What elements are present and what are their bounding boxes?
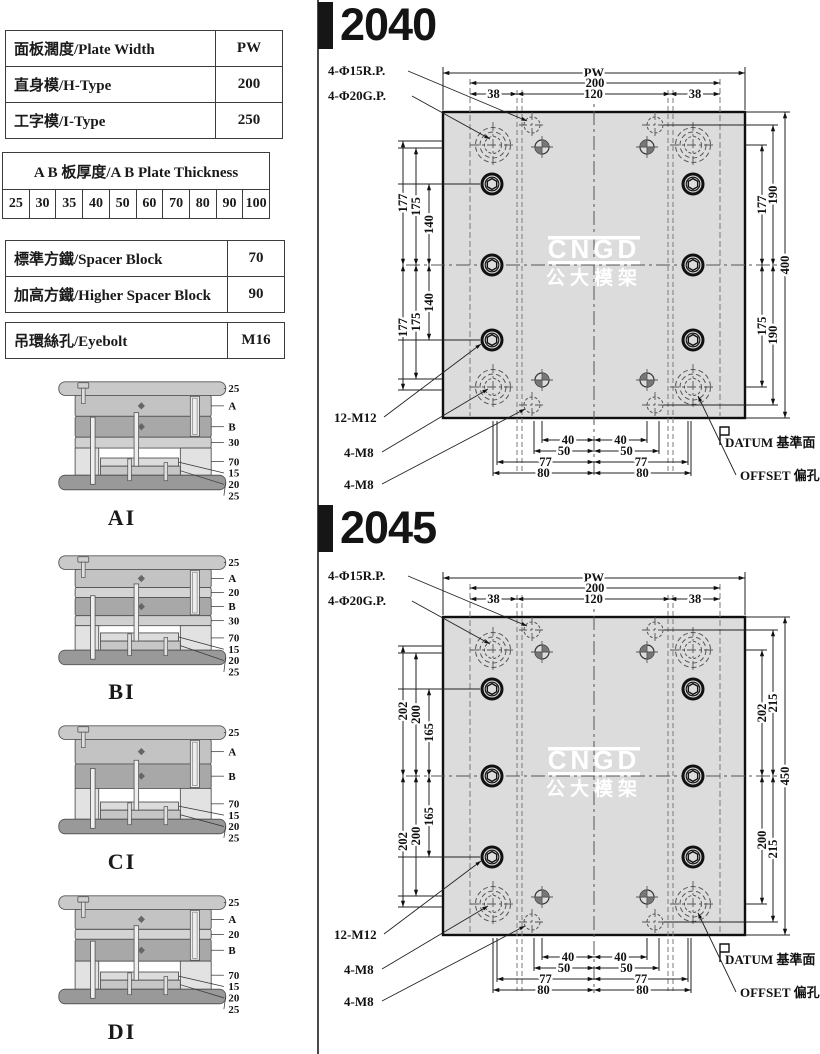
row-value: 90 bbox=[227, 277, 284, 312]
rect-shape bbox=[59, 989, 226, 1004]
dim-label: 165 bbox=[422, 807, 436, 826]
dim-label: 50 bbox=[620, 444, 633, 458]
technical-drawing-2045: CNGD公大模架PW200381203820220220020016516520… bbox=[320, 556, 820, 1034]
thickness-value: 80 bbox=[189, 190, 216, 218]
guide-pin bbox=[91, 941, 96, 998]
callout-label: 4-M8 bbox=[344, 994, 374, 1009]
mold-caption: AI bbox=[42, 505, 202, 531]
layer-label: 25 bbox=[228, 897, 239, 909]
bolt-shaft bbox=[81, 388, 85, 403]
bolt-head bbox=[78, 557, 89, 562]
plate-width-table: 面板濶度/Plate Width PW 直身模/H-Type 200 工字模/I… bbox=[5, 30, 283, 139]
bolt-head bbox=[78, 727, 89, 732]
rect-shape bbox=[180, 448, 211, 475]
guide-pin bbox=[91, 596, 96, 660]
hex-socket-screw bbox=[482, 255, 502, 275]
layer-label: 30 bbox=[228, 615, 239, 627]
dim-label: 165 bbox=[422, 723, 436, 742]
hex-socket-screw bbox=[482, 330, 502, 350]
thickness-value: 25 bbox=[3, 190, 29, 218]
thickness-value: 90 bbox=[216, 190, 243, 218]
guide-bush bbox=[190, 740, 199, 787]
bolt-shaft bbox=[164, 977, 168, 995]
callout-label: 12-M12 bbox=[334, 410, 377, 425]
ejector-pin bbox=[134, 926, 139, 980]
datum-label: DATUM 基準面 bbox=[725, 952, 815, 967]
callout-label: 12-M12 bbox=[334, 927, 377, 942]
layer-label: 25 bbox=[228, 832, 239, 844]
hex-socket-screw bbox=[482, 174, 502, 194]
thickness-value: 60 bbox=[136, 190, 163, 218]
layer-label: 70 bbox=[228, 970, 239, 982]
thickness-header: A B 板厚度/A B Plate Thickness bbox=[3, 153, 269, 190]
dim-label: 400 bbox=[778, 256, 792, 275]
dim-label: 177 bbox=[396, 318, 410, 337]
dim-label: 202 bbox=[396, 702, 410, 721]
hex-socket-screw bbox=[683, 679, 703, 699]
table-row: 加高方鐵/Higher Spacer Block 90 bbox=[6, 276, 284, 312]
rect-shape bbox=[101, 980, 181, 989]
thickness-value: 35 bbox=[55, 190, 82, 218]
rect-shape bbox=[101, 810, 181, 819]
hex-socket-screw bbox=[482, 679, 502, 699]
row-label: 面板濶度/Plate Width bbox=[6, 31, 215, 66]
rect-shape bbox=[101, 641, 181, 650]
dim-label: 140 bbox=[422, 293, 436, 312]
table-row: 直身模/H-Type 200 bbox=[6, 66, 282, 102]
mold-section-CI: 25AB70152025 bbox=[42, 724, 267, 851]
technical-drawing-2040: CNGD公大模架PW200381203817717717517514014017… bbox=[320, 52, 820, 504]
callout-label: 4-Φ20G.P. bbox=[328, 88, 386, 103]
dim-label: 200 bbox=[409, 827, 423, 846]
bolt-shaft bbox=[128, 634, 132, 656]
mold-section-AI: 25AB3070152025 bbox=[42, 380, 267, 507]
callout-label: 4-M8 bbox=[344, 962, 374, 977]
callout-label: 4-Φ20G.P. bbox=[328, 593, 386, 608]
thickness-value: 100 bbox=[242, 190, 269, 218]
dim-label: 177 bbox=[396, 194, 410, 213]
title-bar-accent bbox=[318, 2, 333, 49]
thickness-values-row: 253035405060708090100 bbox=[3, 190, 269, 218]
rect-shape bbox=[59, 819, 226, 834]
guide-bush bbox=[190, 910, 199, 960]
watermark-chinese: 公大模架 bbox=[546, 777, 642, 800]
drawing-title: 2040 bbox=[340, 2, 436, 47]
layer-label: A bbox=[228, 914, 236, 926]
bolt-shaft bbox=[128, 803, 132, 825]
dim-label: 38 bbox=[487, 592, 500, 606]
layer-label: 15 bbox=[228, 468, 239, 480]
row-value: PW bbox=[215, 31, 282, 66]
layer-label: B bbox=[228, 421, 235, 433]
callout-label: 4-M8 bbox=[344, 477, 374, 492]
layer-label: A bbox=[228, 573, 236, 585]
mold-caption: DI bbox=[42, 1019, 202, 1045]
rect-shape bbox=[548, 772, 640, 776]
rect-shape bbox=[180, 626, 211, 650]
bolt-shaft bbox=[128, 973, 132, 995]
bolt-shaft bbox=[81, 902, 85, 917]
ejector-pin bbox=[134, 584, 139, 641]
mold-caption: CI bbox=[42, 849, 202, 875]
layer-label: 25 bbox=[228, 383, 239, 395]
table-row: 工字模/I-Type 250 bbox=[6, 102, 282, 138]
hex-socket-screw bbox=[683, 174, 703, 194]
dim-label: 450 bbox=[778, 767, 792, 786]
dim-label: 215 bbox=[766, 840, 780, 859]
row-label: 吊環絲孔/Eyebolt bbox=[6, 323, 227, 358]
layer-label: 70 bbox=[228, 633, 239, 645]
layer-label: 25 bbox=[228, 557, 239, 569]
ejector-pin bbox=[134, 760, 139, 810]
dim-label: 80 bbox=[537, 466, 550, 480]
layer-label: 15 bbox=[228, 644, 239, 656]
rect-shape bbox=[75, 437, 211, 448]
callout-label: 4-M8 bbox=[344, 445, 374, 460]
layer-label: 20 bbox=[228, 821, 239, 833]
watermark-chinese: 公大模架 bbox=[546, 266, 642, 289]
layer-label: 25 bbox=[228, 490, 239, 502]
bolt-head bbox=[78, 897, 89, 902]
hex-socket-screw bbox=[482, 847, 502, 867]
dim-label: 50 bbox=[558, 961, 571, 975]
hex-socket-screw bbox=[683, 255, 703, 275]
row-label: 加高方鐵/Higher Spacer Block bbox=[6, 277, 227, 312]
dim-label: 202 bbox=[396, 832, 410, 851]
bolt-head bbox=[78, 383, 89, 388]
dim-label: 80 bbox=[537, 983, 550, 997]
catalog-page: 面板濶度/Plate Width PW 直身模/H-Type 200 工字模/I… bbox=[0, 0, 820, 1054]
dim-label: 140 bbox=[422, 215, 436, 234]
layer-label: 25 bbox=[228, 667, 239, 679]
layer-label: 20 bbox=[228, 655, 239, 667]
dim-label: 50 bbox=[620, 961, 633, 975]
ab-plate-thickness-table: A B 板厚度/A B Plate Thickness 253035405060… bbox=[2, 152, 270, 219]
dim-label: 175 bbox=[409, 197, 423, 216]
table-row: 吊環絲孔/Eyebolt M16 bbox=[6, 323, 284, 358]
dim-label: 215 bbox=[766, 694, 780, 713]
guide-bush bbox=[190, 396, 199, 436]
dim-label: 80 bbox=[636, 983, 649, 997]
thickness-value: 40 bbox=[82, 190, 109, 218]
layer-label: B bbox=[228, 601, 235, 613]
thickness-value: 50 bbox=[109, 190, 136, 218]
mold-caption: BI bbox=[42, 679, 202, 705]
mold-section-BI: 25A20B3070152025 bbox=[42, 554, 267, 681]
spacer-block-table: 標準方鐵/Spacer Block 70 加高方鐵/Higher Spacer … bbox=[5, 240, 285, 313]
hex-socket-screw bbox=[482, 766, 502, 786]
layer-label: 20 bbox=[228, 992, 239, 1004]
callout-label: 4-Φ15R.P. bbox=[328, 568, 385, 583]
bolt-shaft bbox=[164, 637, 168, 655]
row-value: 250 bbox=[215, 103, 282, 138]
rect-shape bbox=[75, 616, 211, 626]
rect-shape bbox=[548, 261, 640, 265]
row-value: M16 bbox=[227, 323, 284, 358]
watermark-logo: CNGD公大模架 bbox=[546, 745, 642, 800]
guide-pin bbox=[91, 417, 96, 484]
rect-shape bbox=[180, 961, 211, 989]
hex-socket-screw bbox=[683, 766, 703, 786]
layer-label: B bbox=[228, 945, 235, 957]
layer-label: 15 bbox=[228, 981, 239, 993]
bolt-shaft bbox=[164, 807, 168, 825]
layer-label: 15 bbox=[228, 810, 239, 822]
datum-label: DATUM 基準面 bbox=[725, 435, 815, 450]
guide-bush bbox=[190, 570, 199, 614]
callout-label: 4-Φ15R.P. bbox=[328, 63, 385, 78]
drawing-title: 2045 bbox=[340, 505, 436, 550]
bolt-shaft bbox=[164, 463, 168, 481]
dim-label: 175 bbox=[409, 313, 423, 332]
rect-shape bbox=[180, 788, 211, 819]
layer-label: B bbox=[228, 771, 235, 783]
table-row: 標準方鐵/Spacer Block 70 bbox=[6, 241, 284, 276]
layer-label: 25 bbox=[228, 1004, 239, 1016]
mold-section-DI: 25A20B70152025 bbox=[42, 894, 267, 1021]
dim-label: 190 bbox=[766, 326, 780, 345]
dim-label: 38 bbox=[689, 87, 702, 101]
eyebolt-table: 吊環絲孔/Eyebolt M16 bbox=[5, 322, 285, 359]
layer-label: A bbox=[228, 400, 236, 412]
rect-shape bbox=[101, 466, 181, 475]
offset-label: OFFSET 偏孔 bbox=[740, 985, 820, 1000]
table-row: 面板濶度/Plate Width PW bbox=[6, 31, 282, 66]
watermark-cngd: CNGD bbox=[548, 745, 641, 775]
hex-socket-screw bbox=[683, 330, 703, 350]
thickness-value: 30 bbox=[29, 190, 56, 218]
bolt-shaft bbox=[81, 732, 85, 747]
layer-label: 70 bbox=[228, 798, 239, 810]
line-shape bbox=[382, 906, 488, 969]
dim-label: 80 bbox=[636, 466, 649, 480]
row-value: 70 bbox=[227, 241, 284, 276]
bolt-shaft bbox=[128, 459, 132, 481]
title-bar-accent bbox=[318, 505, 333, 552]
row-value: 200 bbox=[215, 67, 282, 102]
thickness-value: 70 bbox=[162, 190, 189, 218]
row-label: 直身模/H-Type bbox=[6, 67, 215, 102]
row-label: 標準方鐵/Spacer Block bbox=[6, 241, 227, 276]
layer-label: 70 bbox=[228, 456, 239, 468]
dim-label: 50 bbox=[558, 444, 571, 458]
dim-label: 200 bbox=[409, 705, 423, 724]
dim-label: 120 bbox=[584, 87, 603, 101]
watermark-cngd: CNGD bbox=[548, 234, 641, 264]
dim-label: 120 bbox=[584, 592, 603, 606]
dim-label: 38 bbox=[487, 87, 500, 101]
layer-label: A bbox=[228, 746, 236, 758]
layer-label: 20 bbox=[228, 929, 239, 941]
offset-label: OFFSET 偏孔 bbox=[740, 468, 820, 483]
guide-pin bbox=[91, 768, 96, 828]
layer-label: 20 bbox=[228, 479, 239, 491]
row-label: 工字模/I-Type bbox=[6, 103, 215, 138]
layer-label: 30 bbox=[228, 437, 239, 449]
hex-socket-screw bbox=[683, 847, 703, 867]
dim-label: 38 bbox=[689, 592, 702, 606]
ejector-pin bbox=[134, 413, 139, 467]
watermark-logo: CNGD公大模架 bbox=[546, 234, 642, 289]
line-shape bbox=[382, 389, 488, 452]
layer-label: 25 bbox=[228, 727, 239, 739]
layer-label: 20 bbox=[228, 587, 239, 599]
bolt-shaft bbox=[81, 562, 85, 577]
dim-label: 190 bbox=[766, 186, 780, 205]
